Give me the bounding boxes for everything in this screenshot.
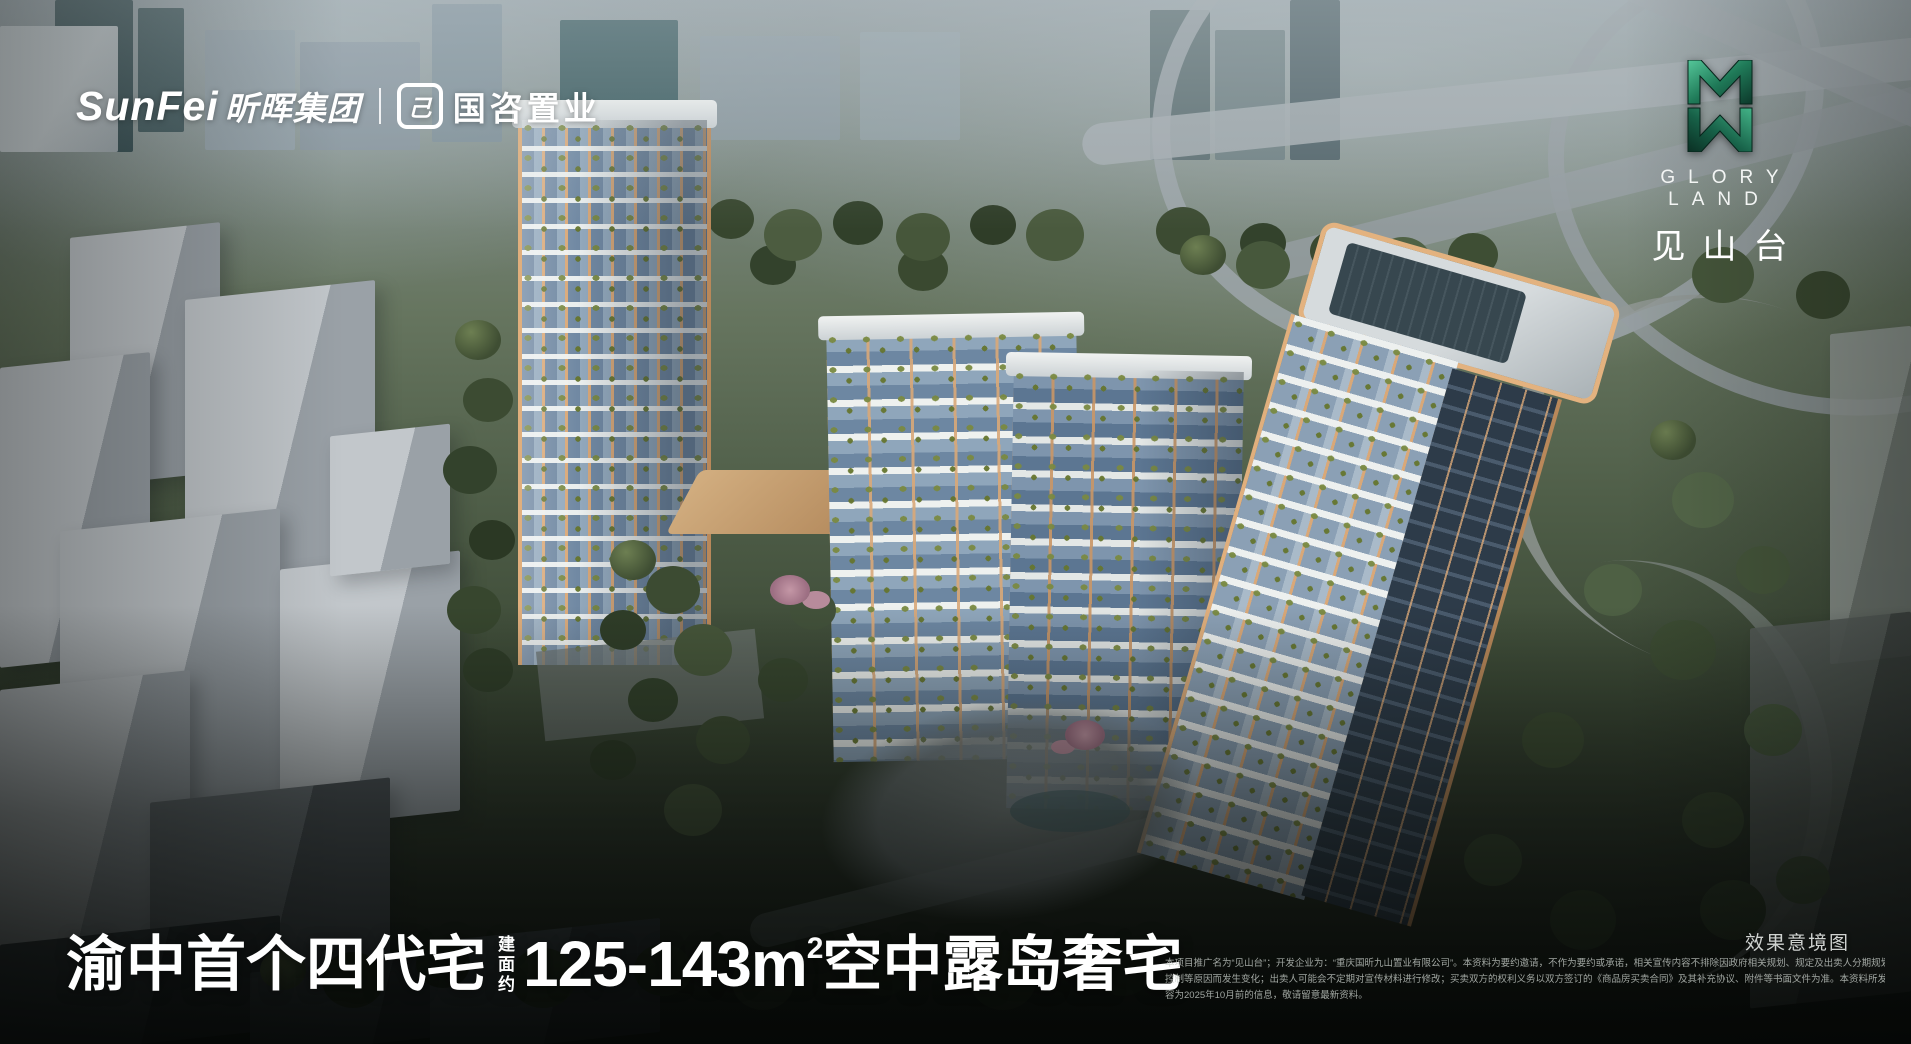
disclaimer-line: 容为2025年10月前的信息，敬请留意最新资料。	[1165, 988, 1885, 1004]
headline-part2: 空中露岛奢宅	[822, 934, 1182, 996]
legal-disclaimer: 本项目推广名为“见山台”；开发企业为：“重庆国昕九山置业有限公司”。本资料为要约…	[1165, 956, 1885, 1004]
guozi-icon-glyph: 己	[408, 89, 431, 123]
headline: 渝中首个四代宅 建 面 约 125-143m2 空中露岛奢宅	[66, 934, 1182, 996]
disclaimer-line: 控制等原因而发生变化；出卖人可能会不定期对宣传材料进行修改；买卖双方的权利义务以…	[1165, 972, 1885, 988]
sunfei-logotype: SunFei	[76, 83, 219, 130]
sunfei-cn-label: 昕晖集团	[225, 82, 361, 130]
partner-label: 国咨置业	[453, 82, 601, 130]
headline-part1: 渝中首个四代宅	[66, 934, 486, 996]
poster: SunFei 昕晖集团 己 国咨置业 GLORY LAND 见山台 渝中首个四代…	[0, 0, 1911, 1044]
guozi-logo-icon: 己	[397, 83, 443, 129]
area-label-column: 建 面 约	[498, 935, 515, 995]
area-char: 面	[498, 955, 515, 975]
brand-lockup: SunFei 昕晖集团 己 国咨置业	[76, 82, 601, 130]
size-range: 125-143m2	[523, 934, 822, 994]
brand-divider	[379, 88, 381, 124]
project-name-cn: 见山台	[1593, 219, 1846, 268]
project-logo: GLORY LAND 见山台	[1593, 60, 1846, 268]
square-sup: 2	[807, 932, 823, 965]
disclaimer-line: 本项目推广名为“见山台”；开发企业为：“重庆国昕九山置业有限公司”。本资料为要约…	[1165, 956, 1885, 972]
gloryland-mw-logo-icon	[1679, 60, 1761, 152]
area-char: 建	[498, 935, 515, 955]
project-name-en: GLORY LAND	[1593, 167, 1846, 211]
render-watermark: 效果意境图	[1745, 928, 1850, 955]
area-char: 约	[498, 975, 515, 995]
size-range-value: 125-143m	[523, 928, 807, 1000]
